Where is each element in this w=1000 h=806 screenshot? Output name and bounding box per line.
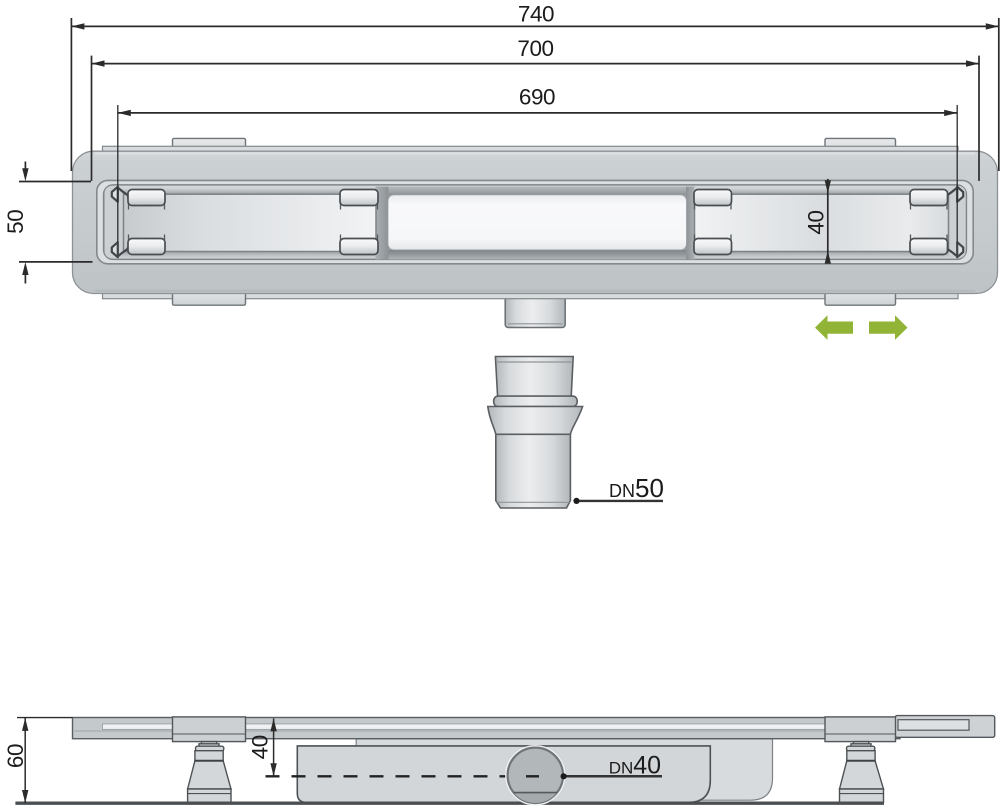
svg-text:690: 690 bbox=[519, 84, 555, 109]
svg-text:740: 740 bbox=[518, 2, 554, 27]
svg-text:DN50: DN50 bbox=[609, 473, 664, 503]
svg-text:40: 40 bbox=[247, 735, 272, 759]
svg-text:50: 50 bbox=[3, 210, 28, 234]
svg-text:700: 700 bbox=[517, 36, 553, 61]
svg-text:60: 60 bbox=[3, 744, 28, 768]
svg-text:40: 40 bbox=[804, 210, 829, 234]
